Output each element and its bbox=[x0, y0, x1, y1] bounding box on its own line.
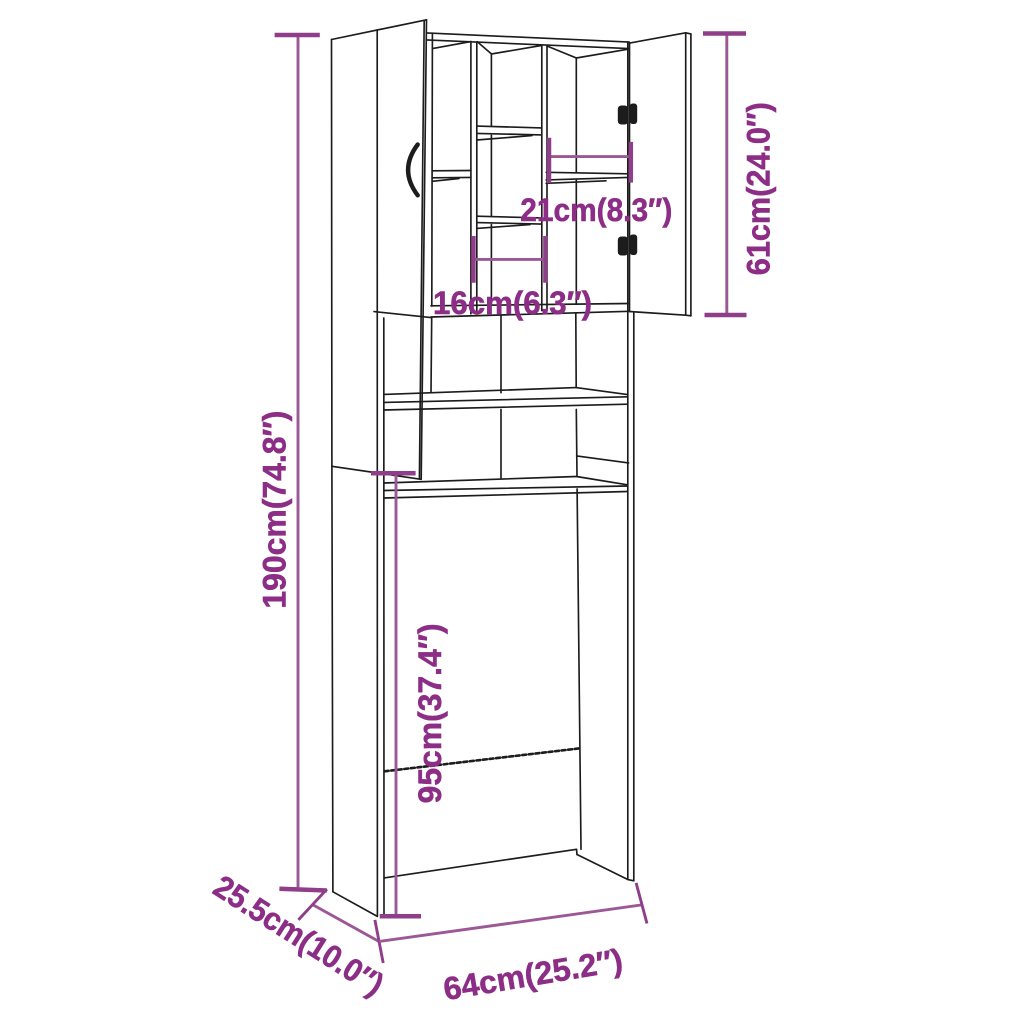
svg-text:95cm(37.4″): 95cm(37.4″) bbox=[412, 623, 448, 803]
svg-text:21cm(8.3″): 21cm(8.3″) bbox=[520, 192, 672, 228]
svg-text:61cm(24.0″): 61cm(24.0″) bbox=[741, 102, 777, 275]
svg-text:64cm(25.2″): 64cm(25.2″) bbox=[441, 942, 625, 1007]
svg-text:16cm(6.3″): 16cm(6.3″) bbox=[433, 285, 592, 321]
svg-text:190cm(74.8″): 190cm(74.8″) bbox=[256, 411, 292, 609]
